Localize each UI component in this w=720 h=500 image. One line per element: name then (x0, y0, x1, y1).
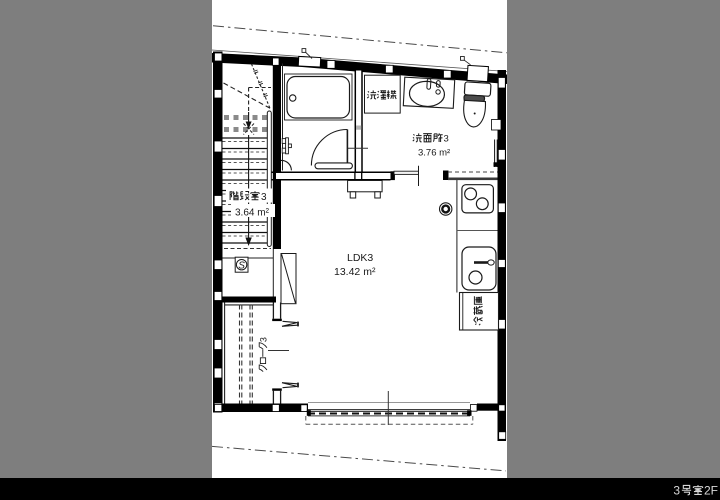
svg-text:3: 3 (259, 337, 269, 342)
svg-text:2F: 2F (704, 484, 718, 498)
svg-text:S: S (238, 260, 245, 271)
svg-text:13.42 m²: 13.42 m² (334, 266, 376, 278)
svg-text:3.76 m²: 3.76 m² (418, 148, 450, 159)
svg-text:3: 3 (673, 484, 680, 498)
svg-text:3.64 m²: 3.64 m² (235, 208, 270, 219)
svg-text:3: 3 (261, 192, 267, 203)
svg-text:LDK3: LDK3 (347, 252, 373, 264)
svg-text:3: 3 (444, 134, 449, 145)
